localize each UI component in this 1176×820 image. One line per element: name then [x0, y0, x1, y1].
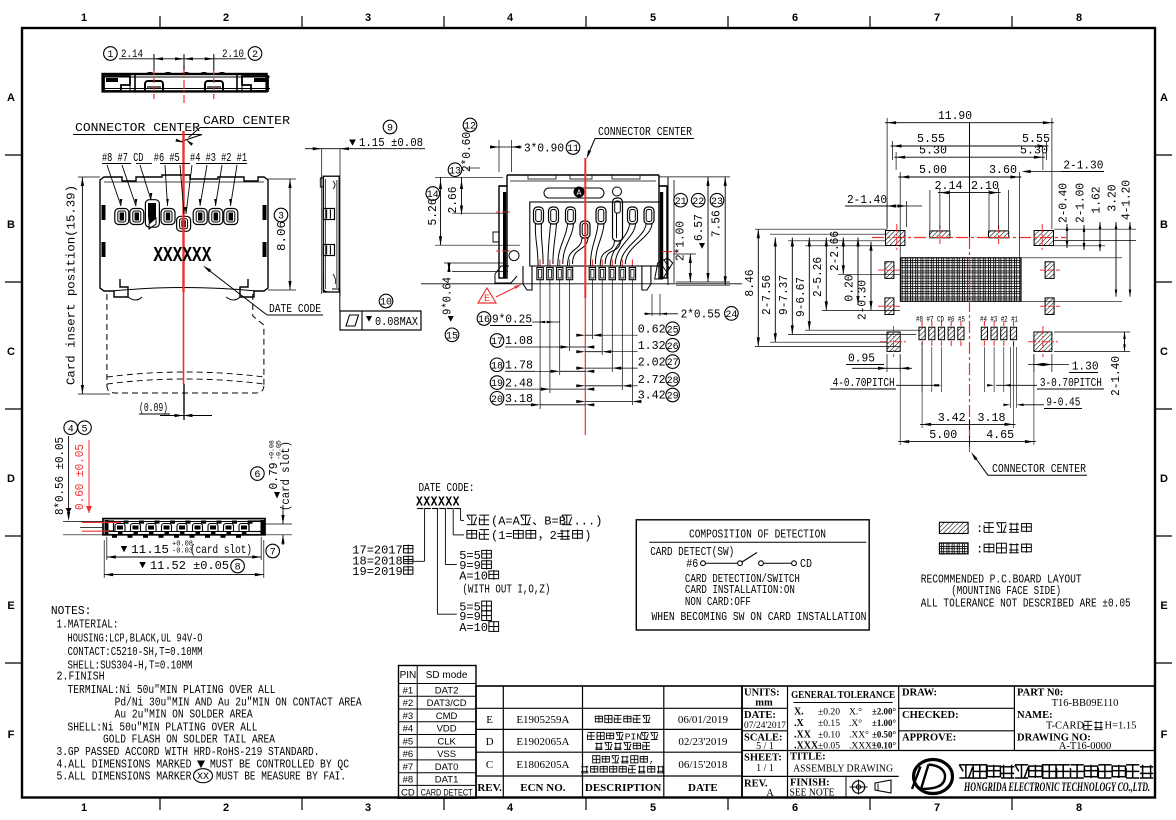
svg-text:REV.: REV. — [744, 779, 768, 790]
svg-text:.XXX: .XXX — [794, 741, 819, 752]
svg-text:3.42: 3.42 — [938, 411, 966, 425]
svg-text:8.06: 8.06 — [275, 221, 289, 251]
svg-text:#4: #4 — [403, 724, 414, 735]
svg-text:mm: mm — [755, 698, 773, 709]
svg-text:2.02: 2.02 — [638, 355, 666, 369]
svg-text:1 / 1: 1 / 1 — [756, 763, 774, 774]
svg-text:2*0.55: 2*0.55 — [681, 307, 721, 321]
svg-text:1.MATERIAL:: 1.MATERIAL: — [57, 618, 119, 632]
svg-text:.X: .X — [794, 718, 805, 729]
svg-text:±0.10°: ±0.10° — [872, 741, 896, 752]
svg-text:5.00: 5.00 — [919, 163, 947, 177]
svg-text:CD: CD — [800, 557, 812, 571]
svg-text:2.72: 2.72 — [638, 373, 666, 387]
svg-text:06/15'2018: 06/15'2018 — [678, 759, 728, 771]
svg-text:±1.00°: ±1.00° — [872, 718, 896, 729]
svg-text:HONGRIDA ELECTRONIC TECHNOLOGY: HONGRIDA ELECTRONIC TECHNOLOGY CO.,LTD. — [963, 780, 1150, 794]
svg-text::: : — [976, 543, 983, 557]
svg-text:19=2019: 19=2019 — [352, 565, 402, 579]
svg-text:4-1.20: 4-1.20 — [1120, 180, 1134, 220]
svg-text:6: 6 — [254, 470, 260, 481]
svg-text:#1: #1 — [403, 685, 414, 696]
svg-text:(card slot): (card slot) — [190, 543, 252, 557]
svg-text:5.26: 5.26 — [426, 199, 440, 226]
svg-text:NOTES:: NOTES: — [51, 604, 92, 618]
svg-text:5: 5 — [81, 424, 87, 435]
svg-text:CONNECTOR CENTER: CONNECTOR CENTER — [75, 121, 200, 135]
svg-text:9-0.45: 9-0.45 — [1046, 396, 1080, 410]
svg-text:CONTACT:C5210-SH,T=0.10MM: CONTACT:C5210-SH,T=0.10MM — [68, 645, 203, 659]
svg-text:#5: #5 — [403, 736, 414, 747]
svg-text:7: 7 — [934, 12, 940, 24]
svg-text:C: C — [7, 346, 15, 358]
svg-text:DATE CODE: DATE CODE — [269, 302, 321, 316]
svg-text:D: D — [1160, 473, 1168, 485]
svg-text:11.52 ±0.05: 11.52 ±0.05 — [150, 559, 229, 573]
svg-text:，2=: ，2= — [538, 529, 564, 543]
svg-text:6: 6 — [792, 12, 798, 24]
svg-text:A: A — [7, 92, 15, 104]
svg-text:±0.15: ±0.15 — [818, 719, 840, 729]
svg-text:B: B — [1160, 219, 1168, 231]
svg-text:CMD: CMD — [436, 711, 458, 722]
svg-text:A=10: A=10 — [459, 569, 488, 583]
svg-text:1.15 ±0.08: 1.15 ±0.08 — [359, 136, 423, 150]
svg-text:B: B — [7, 219, 15, 231]
svg-text:1.62: 1.62 — [1090, 186, 1104, 213]
svg-text:.XX: .XX — [794, 730, 812, 741]
svg-text:A: A — [1160, 92, 1168, 104]
svg-text:23: 23 — [711, 197, 723, 208]
svg-text:E: E — [484, 294, 490, 305]
svg-text:4: 4 — [507, 802, 514, 814]
svg-text:5 / 1: 5 / 1 — [756, 741, 774, 752]
svg-text:2.10: 2.10 — [971, 179, 999, 193]
svg-text:DAT0: DAT0 — [435, 762, 459, 773]
svg-text:07/24'2017: 07/24'2017 — [744, 721, 786, 731]
svg-text:(A=A: (A=A — [491, 514, 521, 528]
svg-text:WHEN BECOMING SW ON CARD INSTA: WHEN BECOMING SW ON CARD INSTALLATION — [652, 610, 867, 624]
svg-text:7.56: 7.56 — [710, 210, 724, 237]
svg-text:3.18: 3.18 — [978, 411, 1006, 425]
svg-text:ECN NO.: ECN NO. — [520, 782, 565, 794]
svg-text:#2: #2 — [403, 698, 414, 709]
svg-text:17: 17 — [491, 337, 503, 348]
svg-text:5.30: 5.30 — [1020, 144, 1048, 158]
svg-text:0.95: 0.95 — [848, 352, 875, 366]
svg-text:ASSEMBLY DRAWING: ASSEMBLY DRAWING — [793, 764, 893, 775]
svg-text:2-2.66: 2-2.66 — [828, 231, 842, 271]
svg-text:±0.10: ±0.10 — [818, 731, 840, 741]
svg-text:): ) — [584, 529, 591, 543]
svg-text:±0.20: ±0.20 — [818, 708, 840, 718]
svg-text:DRAW:: DRAW: — [902, 688, 937, 699]
svg-text:DATE:: DATE: — [744, 710, 776, 721]
svg-text:1.30: 1.30 — [1072, 360, 1099, 374]
svg-text:Card insert position(15.39): Card insert position(15.39) — [65, 185, 79, 385]
svg-text:1.78: 1.78 — [505, 359, 533, 373]
svg-text:5: 5 — [650, 12, 656, 24]
svg-text:4: 4 — [68, 424, 74, 435]
svg-text:DATE: DATE — [688, 782, 718, 794]
svg-text:DAT2: DAT2 — [435, 685, 459, 696]
svg-text:#4 #3 #2 #1: #4 #3 #2 #1 — [980, 315, 1018, 325]
svg-text:APPROVE:: APPROVE: — [902, 733, 956, 744]
svg-text:DESCRIPTION: DESCRIPTION — [585, 782, 661, 794]
svg-text:3.42: 3.42 — [638, 389, 666, 403]
svg-text:2-1.40: 2-1.40 — [1109, 356, 1123, 396]
svg-text:7: 7 — [934, 802, 940, 814]
svg-text:MUST BE MEASURE BY FAI.: MUST BE MEASURE BY FAI. — [216, 770, 346, 784]
svg-text:2.66: 2.66 — [446, 187, 460, 214]
svg-text:X.°: X.° — [849, 707, 862, 718]
svg-text:3.60: 3.60 — [989, 163, 1017, 177]
svg-text:E: E — [486, 714, 493, 726]
svg-text:E1905259A: E1905259A — [516, 714, 569, 726]
svg-text:11.15: 11.15 — [131, 543, 169, 557]
svg-text:2: 2 — [252, 50, 258, 61]
svg-text:.XX°: .XX° — [849, 730, 869, 741]
svg-text:.X°: .X° — [849, 718, 862, 729]
svg-text:06/01/2019: 06/01/2019 — [678, 714, 729, 726]
svg-text:#8: #8 — [403, 775, 414, 786]
svg-text:02/23'2019: 02/23'2019 — [678, 736, 728, 748]
svg-text:VDD: VDD — [437, 724, 457, 735]
svg-text:5.ALL DIMENSIONS MARKER: 5.ALL DIMENSIONS MARKER — [57, 770, 192, 784]
svg-text:±2.00°: ±2.00° — [872, 707, 896, 718]
svg-text:2*0.60: 2*0.60 — [460, 132, 474, 172]
svg-text:REV.: REV. — [477, 782, 502, 794]
svg-text:9*0.64: 9*0.64 — [441, 277, 455, 315]
svg-text:6.57: 6.57 — [692, 214, 706, 241]
svg-text:,: , — [649, 755, 655, 766]
svg-text:SHEET:: SHEET: — [744, 753, 782, 764]
svg-text:E: E — [1160, 600, 1167, 612]
svg-text:3-0.70PITCH: 3-0.70PITCH — [1040, 376, 1102, 390]
svg-text:10: 10 — [380, 298, 392, 309]
svg-text:F: F — [8, 729, 15, 741]
svg-text:SD mode: SD mode — [426, 670, 468, 681]
svg-text:NON CARD:OFF: NON CARD:OFF — [685, 595, 751, 609]
svg-text:6: 6 — [792, 802, 798, 814]
svg-text:D: D — [486, 736, 494, 748]
svg-text:+0.08: +0.08 — [269, 440, 276, 460]
svg-text:2-1.30: 2-1.30 — [1063, 159, 1103, 173]
svg-text:2.14: 2.14 — [935, 179, 963, 193]
svg-text:、B=B: 、B=B — [532, 514, 566, 528]
svg-text:#7: #7 — [403, 762, 414, 773]
svg-text:9-7.37: 9-7.37 — [777, 275, 791, 315]
svg-text:8: 8 — [235, 563, 241, 574]
svg-text:2-7.56: 2-7.56 — [760, 275, 774, 315]
svg-text:CONNECTOR CENTER: CONNECTOR CENTER — [992, 462, 1086, 476]
svg-text:CHECKED:: CHECKED: — [902, 710, 959, 721]
svg-text:1: 1 — [81, 802, 87, 814]
svg-text:CARD CENTER: CARD CENTER — [203, 114, 290, 128]
svg-text:(0.09): (0.09) — [139, 401, 168, 415]
svg-text:2-0.40: 2-0.40 — [1057, 183, 1071, 223]
svg-text:5: 5 — [650, 802, 656, 814]
svg-text:21: 21 — [675, 197, 687, 208]
svg-text:A: A — [577, 189, 582, 198]
svg-text:3: 3 — [365, 802, 371, 814]
svg-text:13: 13 — [449, 166, 461, 177]
svg-text:2.48: 2.48 — [505, 376, 533, 390]
svg-text:XX: XX — [197, 772, 209, 783]
svg-text:27: 27 — [667, 358, 679, 369]
svg-text:5.00: 5.00 — [929, 428, 957, 442]
svg-text:0.20: 0.20 — [843, 274, 857, 301]
svg-text:20: 20 — [491, 395, 503, 406]
svg-text:9*0.25: 9*0.25 — [492, 313, 532, 327]
svg-text:1: 1 — [81, 12, 87, 24]
svg-text:-0.05: -0.05 — [276, 440, 283, 460]
svg-text:1.32: 1.32 — [638, 339, 666, 353]
svg-text:25: 25 — [667, 325, 679, 336]
svg-text:...): ...) — [574, 514, 603, 528]
svg-text:22: 22 — [692, 197, 704, 208]
svg-text:11.90: 11.90 — [938, 109, 972, 123]
svg-text:9: 9 — [387, 124, 393, 135]
svg-text:#6: #6 — [686, 557, 698, 571]
svg-text:8*0.56 ±0.05: 8*0.56 ±0.05 — [53, 437, 67, 515]
svg-text:CONNECTOR CENTER: CONNECTOR CENTER — [598, 125, 692, 139]
svg-text:DATE CODE:: DATE CODE: — [419, 481, 475, 495]
svg-text::: : — [976, 522, 983, 536]
svg-text:3.18: 3.18 — [505, 392, 533, 406]
svg-text:VSS: VSS — [437, 749, 456, 760]
svg-text:0.62: 0.62 — [638, 322, 666, 336]
svg-text:4: 4 — [507, 12, 514, 24]
svg-text:2: 2 — [223, 802, 229, 814]
svg-text:2.FINISH: 2.FINISH — [57, 670, 105, 684]
svg-text:DAT3/CD: DAT3/CD — [427, 698, 467, 709]
svg-text:4-0.70PITCH: 4-0.70PITCH — [833, 376, 895, 390]
svg-text:(1=: (1= — [491, 529, 513, 543]
svg-text:HOUSING:LCP,BLACK,UL 94V-O: HOUSING:LCP,BLACK,UL 94V-O — [68, 631, 203, 645]
svg-text:2*1.00: 2*1.00 — [673, 221, 687, 261]
svg-text:CARD DETECT: CARD DETECT — [421, 787, 473, 798]
svg-text:A-T16-0000: A-T16-0000 — [1059, 741, 1112, 752]
svg-text:24: 24 — [725, 310, 737, 321]
svg-text:28: 28 — [667, 376, 679, 387]
svg-text:#3: #3 — [403, 711, 414, 722]
svg-text:12: 12 — [464, 122, 476, 133]
svg-text:0.60 ±0.05: 0.60 ±0.05 — [73, 444, 87, 510]
svg-text:9-6.67: 9-6.67 — [794, 277, 808, 317]
svg-text:NAME:: NAME: — [1017, 710, 1053, 721]
svg-text:A=10: A=10 — [459, 621, 488, 635]
svg-text:5.30: 5.30 — [919, 144, 947, 158]
svg-text:3.20: 3.20 — [1106, 184, 1120, 211]
svg-text:2: 2 — [223, 12, 229, 24]
svg-text:T-CARD: T-CARD — [1046, 721, 1087, 732]
svg-text:CLK: CLK — [437, 736, 456, 747]
svg-text:XXXXXX: XXXXXX — [153, 245, 211, 268]
svg-text:11: 11 — [567, 144, 579, 155]
svg-text:3*0.90: 3*0.90 — [524, 142, 564, 156]
svg-text:ALL TOLERANCE NOT DESCRIBED AR: ALL TOLERANCE NOT DESCRIBED ARE ±0.05 — [921, 597, 1131, 611]
svg-text:7: 7 — [270, 548, 276, 559]
svg-text:DAT1: DAT1 — [435, 775, 459, 786]
svg-text:2-0.30: 2-0.30 — [856, 280, 870, 320]
svg-text:C: C — [486, 759, 493, 771]
svg-text:PIN: PIN — [625, 731, 642, 742]
svg-text:(WITH OUT I,O,Z): (WITH OUT I,O,Z) — [462, 583, 550, 597]
svg-text:T16-BB09E110: T16-BB09E110 — [1052, 698, 1119, 709]
svg-text:8.46: 8.46 — [743, 269, 757, 296]
svg-text:COMPOSITION OF DETECTION: COMPOSITION OF DETECTION — [689, 528, 826, 542]
svg-text:#8 #7 CD #6 #5: #8 #7 CD #6 #5 — [916, 315, 965, 325]
svg-text:E: E — [7, 600, 14, 612]
svg-text:F: F — [1161, 729, 1168, 741]
svg-text:#8 #7 CD #6 #5 #4 #3 #2 #1: #8 #7 CD #6 #5 #4 #3 #2 #1 — [102, 151, 247, 165]
svg-text:29: 29 — [667, 392, 679, 403]
svg-text:±0.50°: ±0.50° — [872, 730, 896, 741]
svg-text:SEE NOTE: SEE NOTE — [790, 788, 835, 799]
svg-text:2-1.00: 2-1.00 — [1074, 183, 1088, 223]
svg-text:16: 16 — [478, 315, 490, 326]
svg-text:GENERAL TOLERANCE: GENERAL TOLERANCE — [791, 689, 895, 701]
svg-text:1.08: 1.08 — [505, 334, 533, 348]
svg-text:±0.05: ±0.05 — [818, 742, 840, 752]
svg-text:2-5.26: 2-5.26 — [811, 257, 825, 297]
svg-text:4.65: 4.65 — [986, 428, 1014, 442]
svg-text:E1806205A: E1806205A — [516, 759, 569, 771]
svg-text:2-1.40: 2-1.40 — [847, 193, 887, 207]
svg-text:18: 18 — [491, 361, 503, 372]
svg-text:26: 26 — [667, 342, 679, 353]
svg-text:15: 15 — [446, 331, 458, 342]
svg-text:3: 3 — [278, 212, 284, 223]
svg-text:PIN: PIN — [400, 670, 417, 681]
svg-text:C: C — [1160, 346, 1168, 358]
svg-text:#6: #6 — [403, 749, 414, 760]
svg-text:A: A — [766, 788, 774, 799]
svg-text:H=1.15: H=1.15 — [1105, 721, 1137, 732]
svg-text:D: D — [7, 473, 15, 485]
svg-text:1: 1 — [107, 50, 113, 61]
svg-text:0.08MAX: 0.08MAX — [375, 315, 418, 329]
svg-text:X.: X. — [794, 707, 804, 718]
svg-text:3: 3 — [365, 12, 371, 24]
svg-text:CD: CD — [401, 787, 415, 798]
svg-text:8: 8 — [1076, 12, 1082, 24]
svg-text:E1902065A: E1902065A — [516, 736, 569, 748]
svg-text:8: 8 — [1076, 802, 1082, 814]
svg-text:TITLE:: TITLE: — [790, 752, 826, 763]
svg-text:19: 19 — [491, 379, 503, 390]
